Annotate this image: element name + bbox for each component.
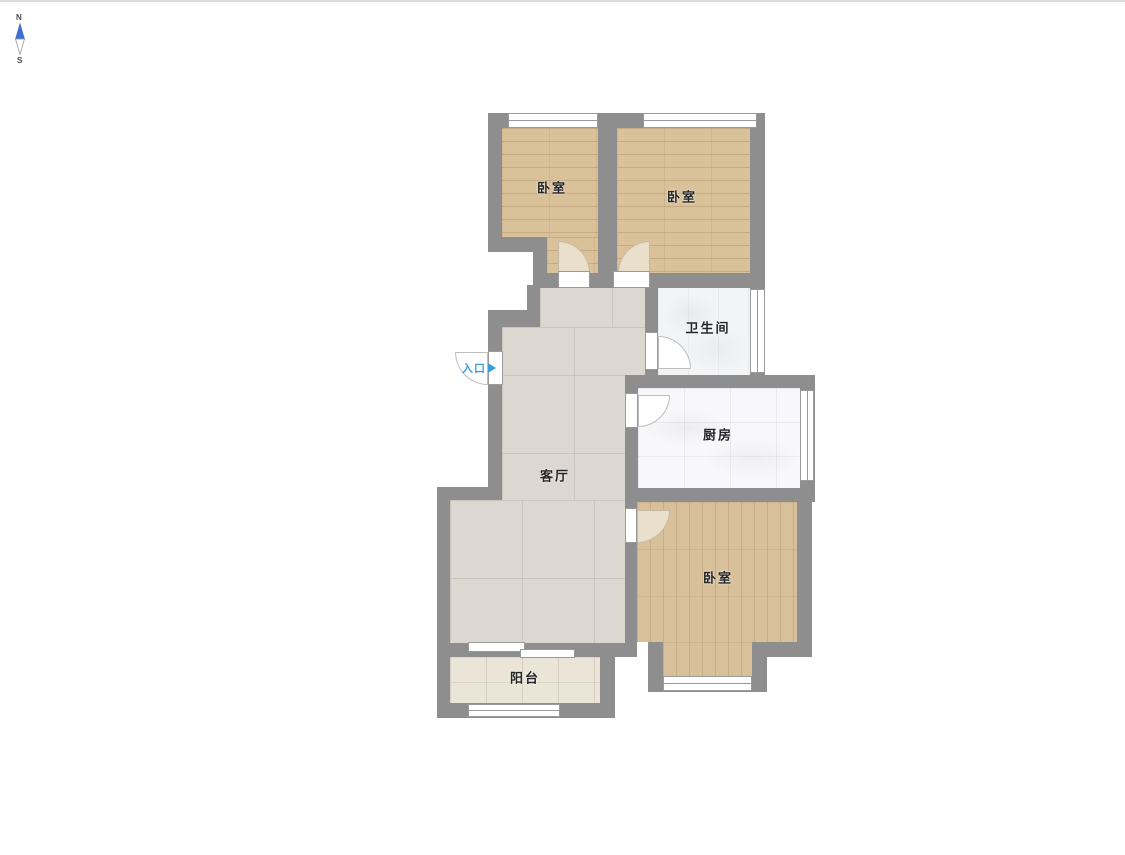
wall-kitchen-top: [625, 375, 815, 388]
compass-north-label: N: [16, 13, 22, 22]
room-label-bedroom-bottom: 卧室: [703, 568, 733, 587]
room-label-living-room: 客厅: [540, 466, 570, 485]
window-balcony: [468, 704, 560, 717]
floor-living-upper: [502, 327, 645, 375]
sliding-door-panel-right: [520, 649, 575, 658]
wall-between-bedrooms: [598, 128, 617, 273]
compass-south-label: S: [17, 56, 22, 65]
door-threshold-bedroom-top-right: [613, 271, 650, 288]
sliding-door-panel-left: [468, 642, 525, 652]
floor-plan-page: N S: [0, 0, 1125, 855]
page-top-divider: [0, 0, 1125, 2]
door-threshold-bedroom-top-left: [558, 271, 590, 288]
wall-left-upper: [488, 128, 502, 252]
room-label-kitchen: 厨房: [703, 425, 733, 444]
floor-bedroom-bottom-bay: [663, 642, 752, 677]
window-bedroom-top-right: [643, 113, 757, 128]
wall-bedroom3-right: [797, 502, 812, 657]
floor-living-lower: [450, 500, 625, 643]
wall-bedroom1-bottom: [488, 237, 533, 252]
wall-left-lower: [437, 487, 450, 718]
window-bathroom: [750, 289, 765, 373]
floor-living-hallway: [540, 285, 645, 327]
door-threshold-bedroom-bottom: [625, 508, 637, 543]
entrance-marker: 入口: [462, 360, 496, 376]
wall-kitchen-bottom: [625, 488, 815, 502]
compass-needle-icon: [13, 23, 27, 55]
window-kitchen: [800, 390, 814, 481]
door-threshold-bathroom: [645, 332, 658, 370]
room-label-balcony: 阳台: [510, 668, 540, 687]
room-label-bathroom: 卫生间: [685, 318, 730, 337]
wall-notch-bottom: [488, 310, 540, 327]
window-bedroom-bottom-bay: [663, 676, 752, 691]
room-label-bedroom-top-left: 卧室: [537, 178, 567, 197]
window-bedroom-top-left: [508, 113, 598, 128]
entrance-arrow-icon: [488, 363, 496, 373]
room-label-bedroom-top-right: 卧室: [667, 187, 697, 206]
wall-right-upper: [750, 113, 765, 288]
entrance-label: 入口: [462, 360, 486, 376]
door-threshold-kitchen: [625, 393, 638, 428]
